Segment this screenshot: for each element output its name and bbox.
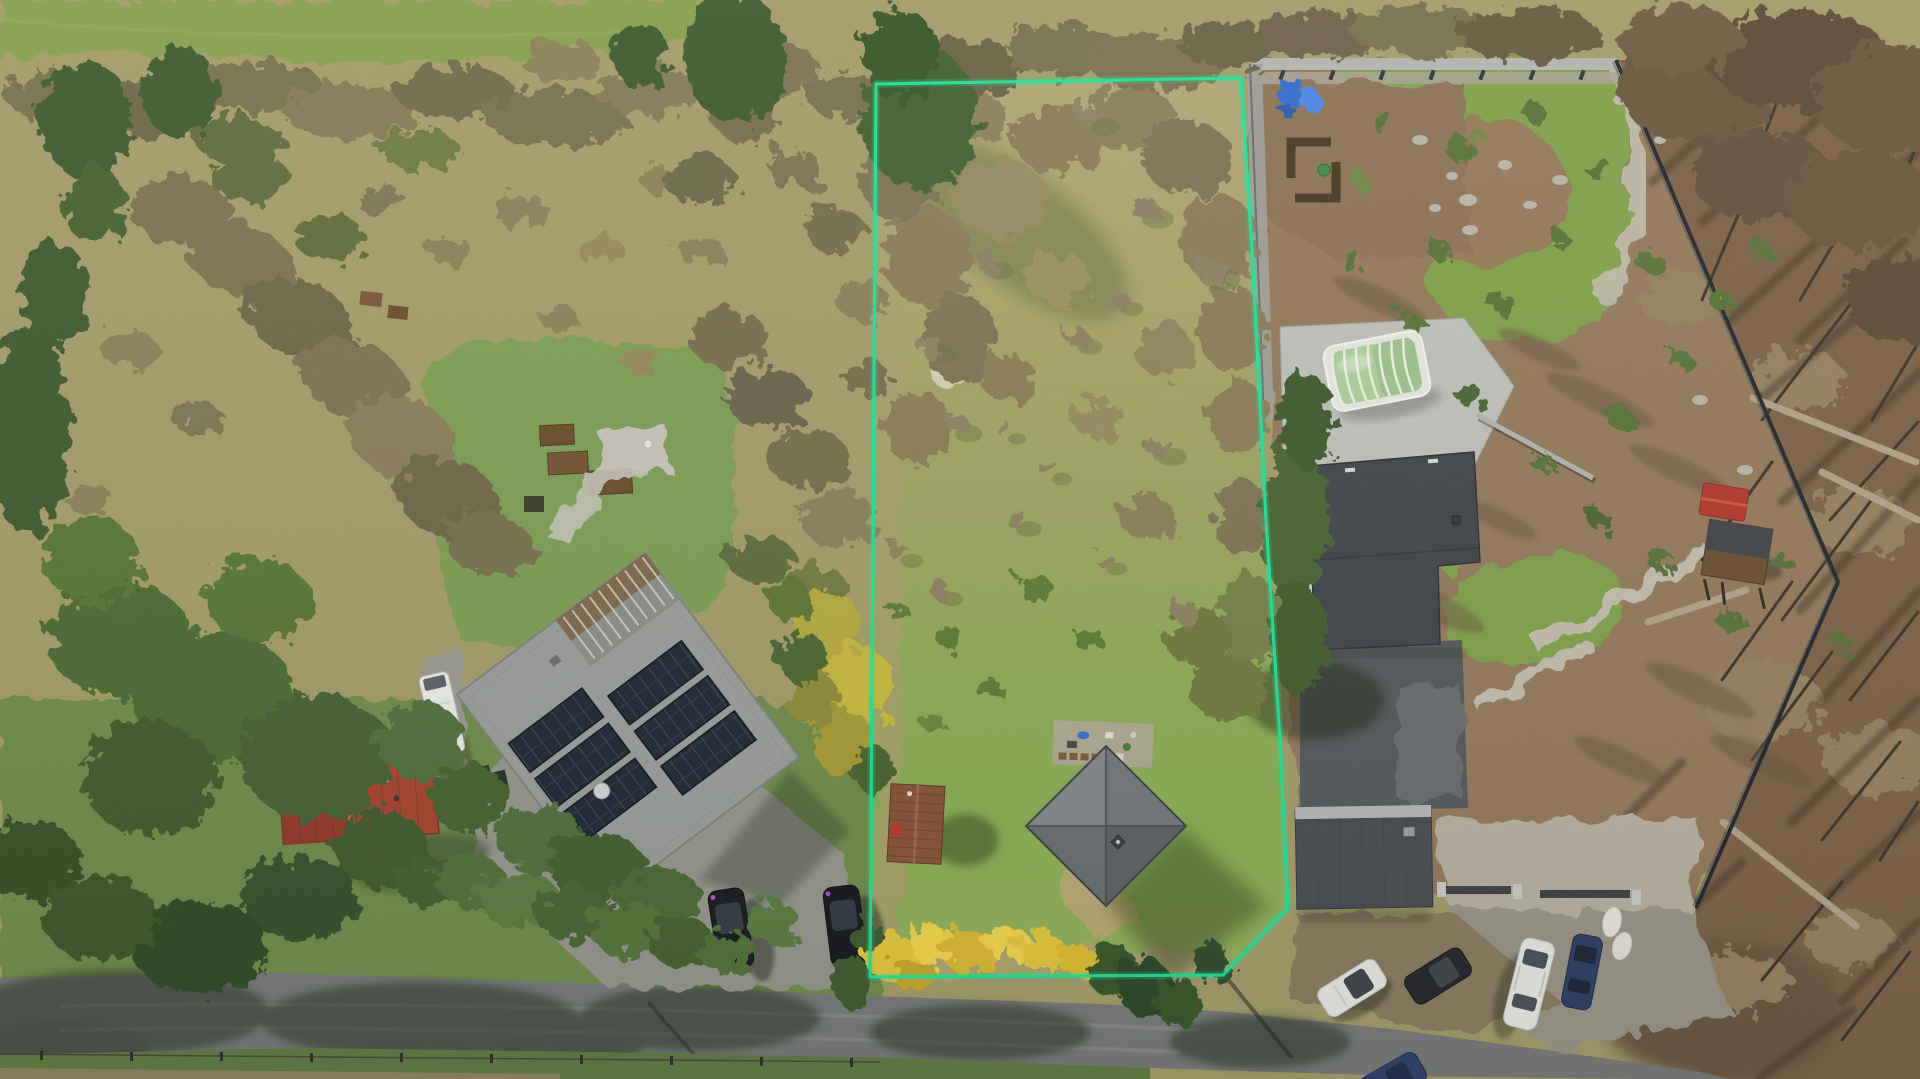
aerial-photo (0, 0, 1920, 1079)
light-overlay (0, 0, 1920, 1079)
aerial-photo-screenshot (0, 0, 1920, 1079)
